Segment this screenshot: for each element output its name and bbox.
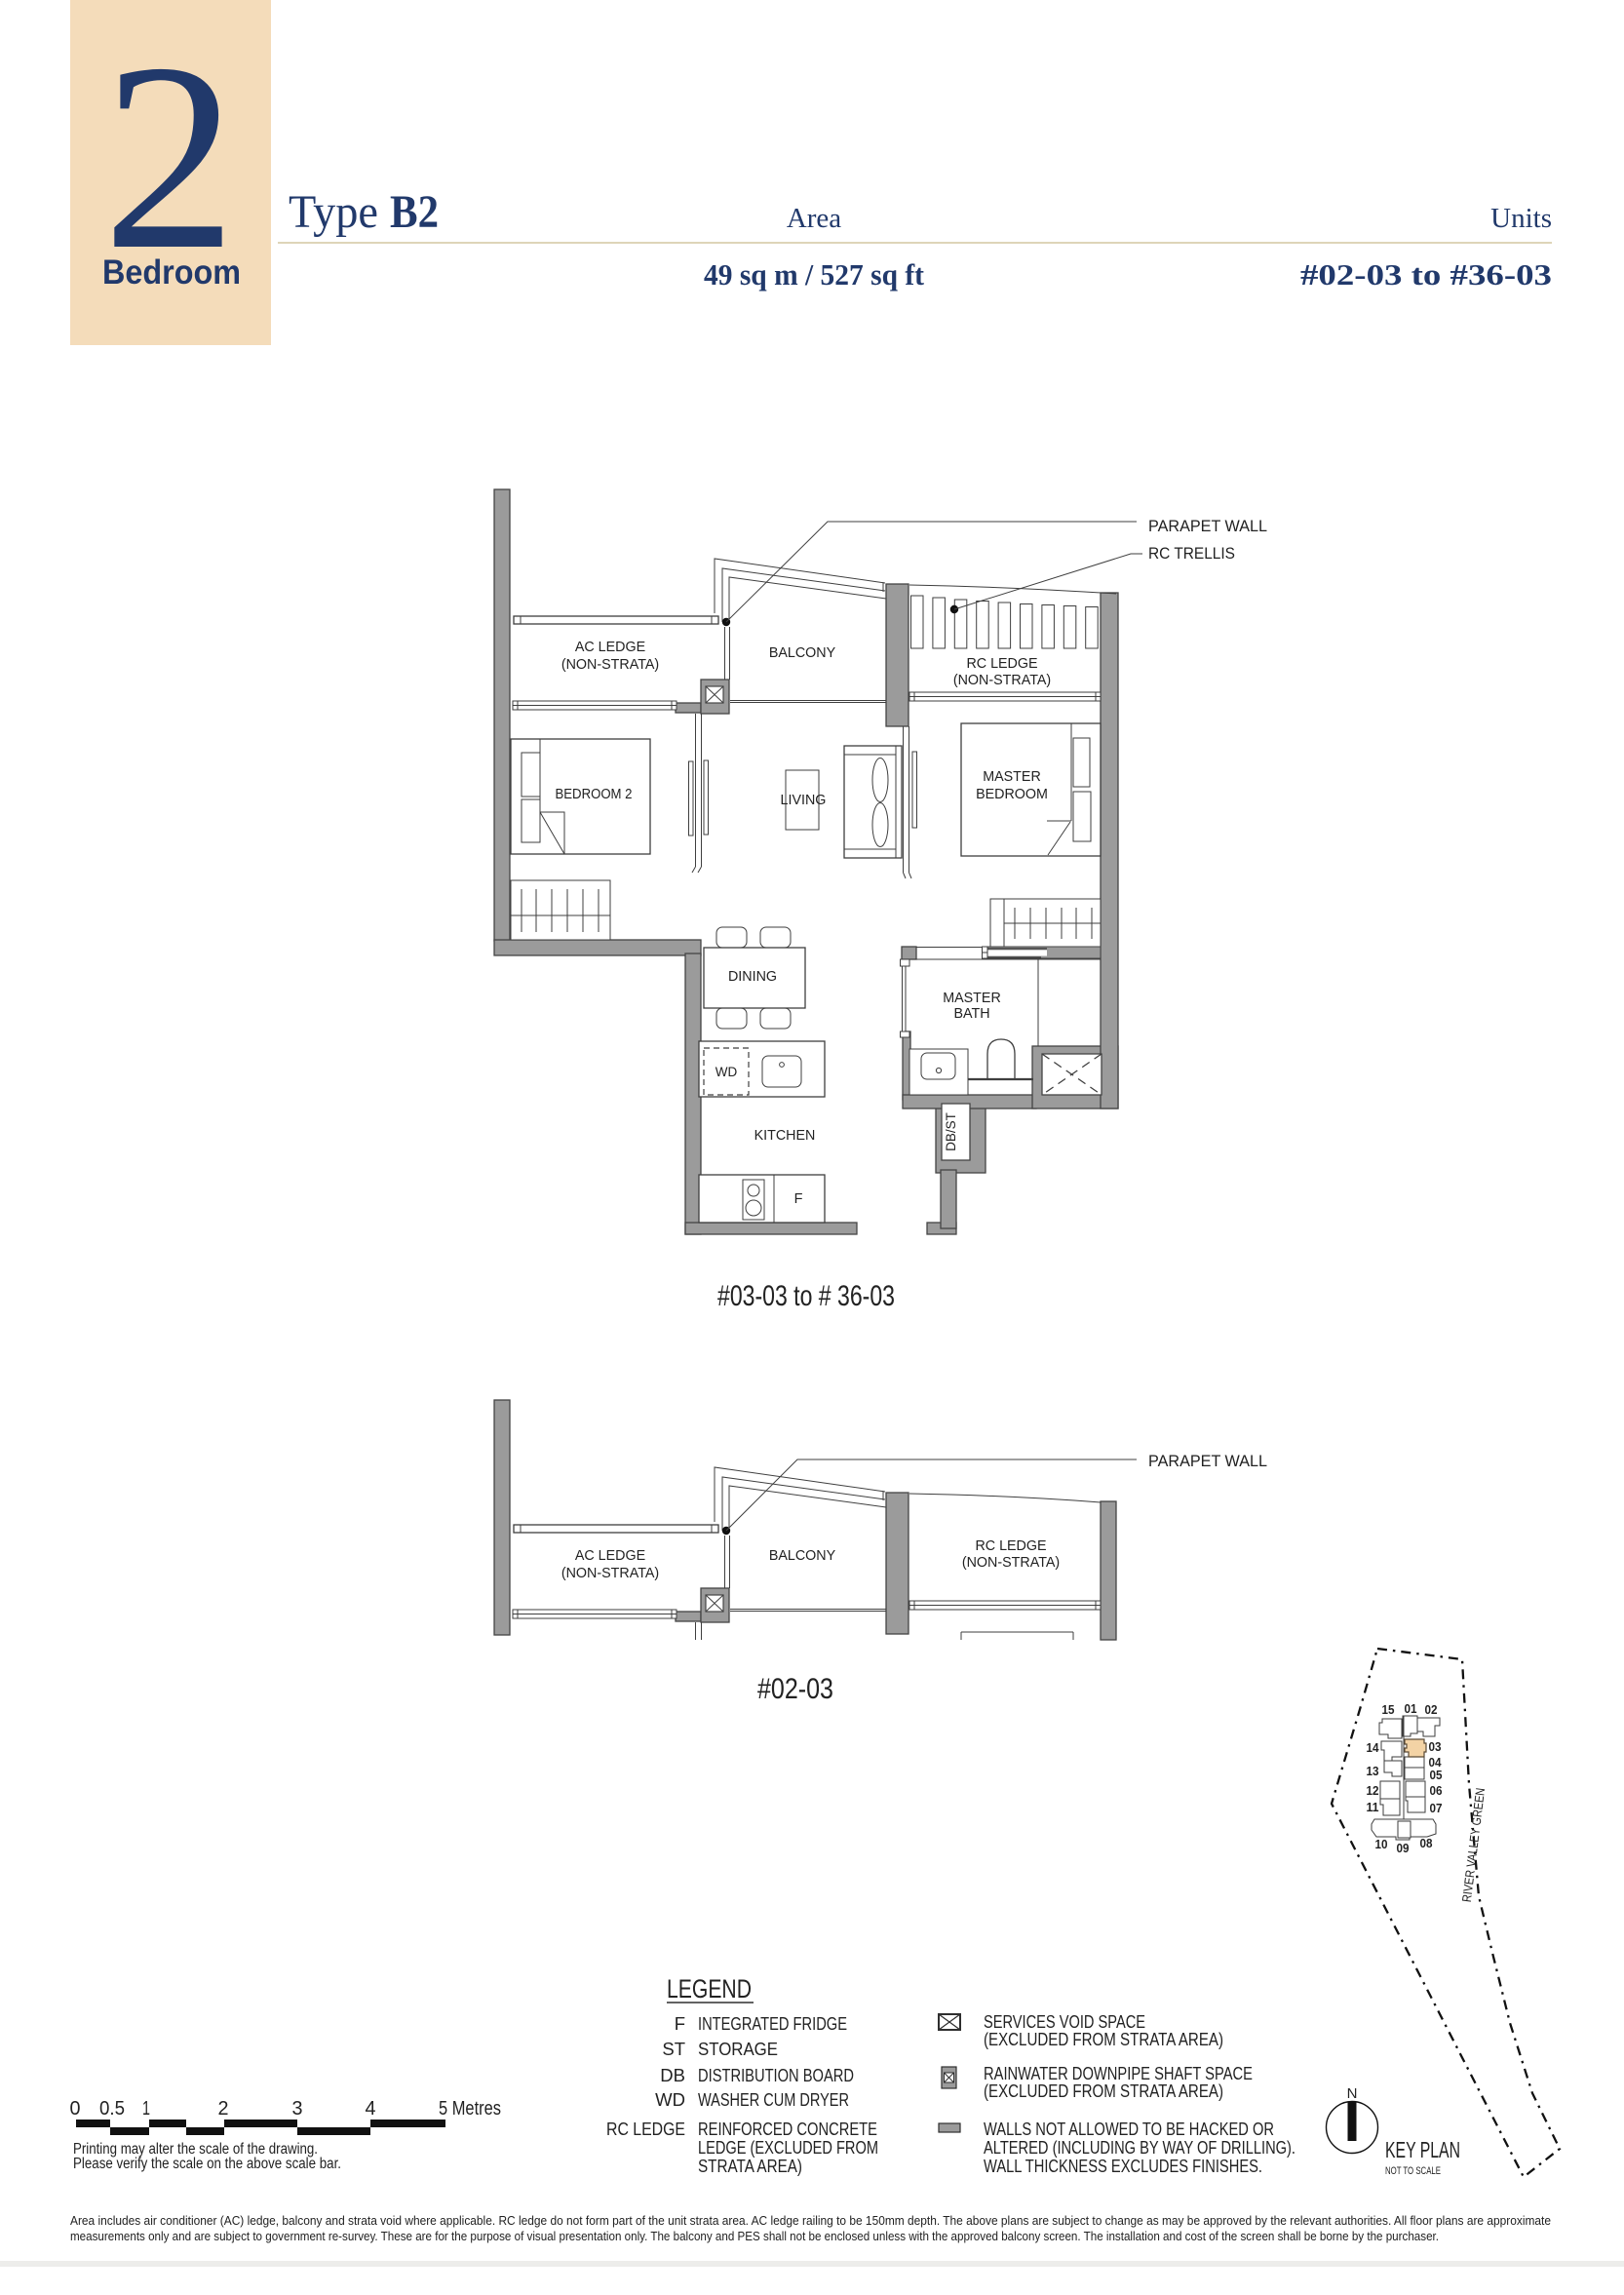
svg-text:PARAPET WALL: PARAPET WALL <box>1148 517 1267 535</box>
svg-text:(NON-STRATA): (NON-STRATA) <box>561 657 659 673</box>
svg-text:12: 12 <box>1367 1783 1379 1798</box>
svg-text:Bedroom: Bedroom <box>102 253 241 292</box>
svg-text:15: 15 <box>1382 1702 1395 1717</box>
svg-text:(NON-STRATA): (NON-STRATA) <box>561 1566 659 1581</box>
svg-text:RC LEDGE: RC LEDGE <box>975 1538 1046 1554</box>
svg-text:F: F <box>675 2013 685 2034</box>
svg-text:#02-03 to #36-03: #02-03 to #36-03 <box>1300 257 1552 292</box>
svg-text:#02-03: #02-03 <box>757 1673 833 1705</box>
svg-text:03: 03 <box>1429 1739 1442 1754</box>
svg-text:(EXCLUDED FROM STRATA AREA): (EXCLUDED FROM STRATA AREA) <box>984 2081 1223 2101</box>
svg-text:1: 1 <box>142 2098 150 2120</box>
svg-text:11: 11 <box>1367 1800 1379 1814</box>
svg-text:PARAPET WALL: PARAPET WALL <box>1148 1452 1267 1470</box>
svg-text:REINFORCED CONCRETE: REINFORCED CONCRETE <box>698 2119 877 2139</box>
svg-text:0.5: 0.5 <box>99 2098 125 2120</box>
svg-text:4: 4 <box>366 2098 376 2120</box>
svg-text:#03-03 to # 36-03: #03-03 to # 36-03 <box>717 1280 895 1312</box>
svg-text:ST: ST <box>662 2039 685 2059</box>
svg-text:WASHER CUM DRYER: WASHER CUM DRYER <box>698 2089 849 2110</box>
svg-text:08: 08 <box>1420 1836 1433 1850</box>
svg-text:measurements only and are subj: measurements only and are subject to gov… <box>70 2229 1439 2243</box>
svg-text:10: 10 <box>1375 1837 1388 1851</box>
svg-text:DINING: DINING <box>728 969 777 985</box>
svg-text:Type: Type <box>289 186 378 238</box>
svg-text:BALCONY: BALCONY <box>769 645 836 661</box>
svg-text:RC LEDGE: RC LEDGE <box>966 656 1037 672</box>
svg-text:(NON-STRATA): (NON-STRATA) <box>962 1555 1060 1571</box>
svg-text:3: 3 <box>292 2098 303 2120</box>
svg-text:(EXCLUDED FROM STRATA AREA): (EXCLUDED FROM STRATA AREA) <box>984 2029 1223 2049</box>
svg-text:KEY PLAN: KEY PLAN <box>1385 2137 1460 2162</box>
svg-text:MASTER: MASTER <box>943 991 1001 1006</box>
svg-text:INTEGRATED FRIDGE: INTEGRATED FRIDGE <box>698 2013 847 2034</box>
svg-text:13: 13 <box>1367 1764 1379 1778</box>
svg-text:09: 09 <box>1397 1841 1410 1855</box>
svg-text:Area: Area <box>787 203 841 234</box>
svg-text:AC LEDGE: AC LEDGE <box>575 640 645 655</box>
svg-text:DISTRIBUTION BOARD: DISTRIBUTION BOARD <box>698 2065 854 2085</box>
svg-text:06: 06 <box>1430 1783 1443 1798</box>
svg-text:N: N <box>1347 2085 1358 2102</box>
svg-text:WD: WD <box>655 2089 685 2110</box>
svg-text:LEGEND: LEGEND <box>667 1974 752 2003</box>
svg-text:MASTER: MASTER <box>983 769 1041 785</box>
svg-text:14: 14 <box>1367 1740 1380 1755</box>
svg-text:BEDROOM 2: BEDROOM 2 <box>556 787 633 802</box>
svg-text:BALCONY: BALCONY <box>769 1548 836 1564</box>
svg-text:Area includes air conditioner: Area includes air conditioner (AC) ledge… <box>70 2213 1551 2228</box>
svg-text:WD: WD <box>715 1065 738 1079</box>
svg-text:AC LEDGE: AC LEDGE <box>575 1548 645 1564</box>
svg-text:STORAGE: STORAGE <box>698 2039 778 2059</box>
svg-text:BATH: BATH <box>953 1006 989 1022</box>
svg-text:B2: B2 <box>390 186 439 238</box>
svg-text:F: F <box>794 1191 803 1207</box>
svg-text:(NON-STRATA): (NON-STRATA) <box>953 673 1051 688</box>
svg-text:5 Metres: 5 Metres <box>439 2098 501 2120</box>
svg-text:WALL THICKNESS EXCLUDES FINISH: WALL THICKNESS EXCLUDES FINISHES. <box>984 2156 1262 2176</box>
svg-text:NOT TO SCALE: NOT TO SCALE <box>1385 2165 1441 2177</box>
svg-text:49 sq m / 527 sq ft: 49 sq m / 527 sq ft <box>704 257 925 292</box>
svg-text:RC LEDGE: RC LEDGE <box>606 2119 685 2139</box>
svg-text:LEDGE (EXCLUDED FROM: LEDGE (EXCLUDED FROM <box>698 2137 878 2158</box>
svg-text:LIVING: LIVING <box>781 793 827 808</box>
svg-text:RC TRELLIS: RC TRELLIS <box>1148 544 1235 563</box>
svg-text:KITCHEN: KITCHEN <box>754 1128 816 1144</box>
svg-text:DB/ST: DB/ST <box>944 1112 958 1151</box>
svg-text:02: 02 <box>1425 1702 1438 1717</box>
svg-text:ALTERED (INCLUDING BY WAY OF D: ALTERED (INCLUDING BY WAY OF DRILLING). <box>984 2137 1295 2158</box>
svg-text:01: 01 <box>1405 1701 1417 1716</box>
svg-text:Units: Units <box>1490 203 1552 234</box>
svg-text:DB: DB <box>660 2065 685 2085</box>
svg-text:2: 2 <box>218 2098 229 2120</box>
svg-text:Please verify the scale on the: Please verify the scale on the above sca… <box>73 2156 341 2172</box>
svg-text:05: 05 <box>1430 1768 1443 1782</box>
svg-text:STRATA AREA): STRATA AREA) <box>698 2156 802 2176</box>
svg-text:WALLS NOT ALLOWED TO BE HACKED: WALLS NOT ALLOWED TO BE HACKED OR <box>984 2119 1274 2139</box>
svg-text:07: 07 <box>1430 1801 1443 1815</box>
svg-text:BEDROOM: BEDROOM <box>976 787 1048 802</box>
svg-text:0: 0 <box>70 2098 81 2120</box>
